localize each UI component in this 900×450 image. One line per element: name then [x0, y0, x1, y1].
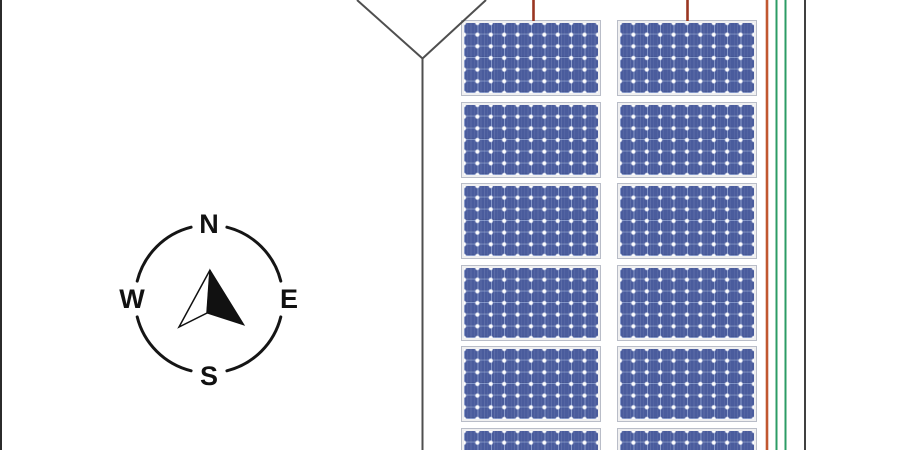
compass-label-south: S	[200, 361, 218, 391]
solar-roof-plan: N E S W	[0, 0, 900, 450]
compass-arc-ne	[227, 227, 281, 281]
compass-label-west: W	[119, 284, 145, 314]
compass-arc-nw	[137, 227, 191, 281]
compass-needle-east-half-icon	[207, 270, 244, 325]
compass-label-north: N	[199, 209, 219, 239]
compass-label-east: E	[280, 284, 298, 314]
roof-hip-line-left	[357, 0, 423, 59]
plan-linework: N E S W	[0, 0, 900, 450]
compass-needle-west-half-icon	[179, 270, 210, 327]
compass-rose-icon: N E S W	[119, 209, 298, 391]
roof-hip-line-right	[423, 0, 487, 59]
compass-arc-se	[227, 317, 281, 371]
